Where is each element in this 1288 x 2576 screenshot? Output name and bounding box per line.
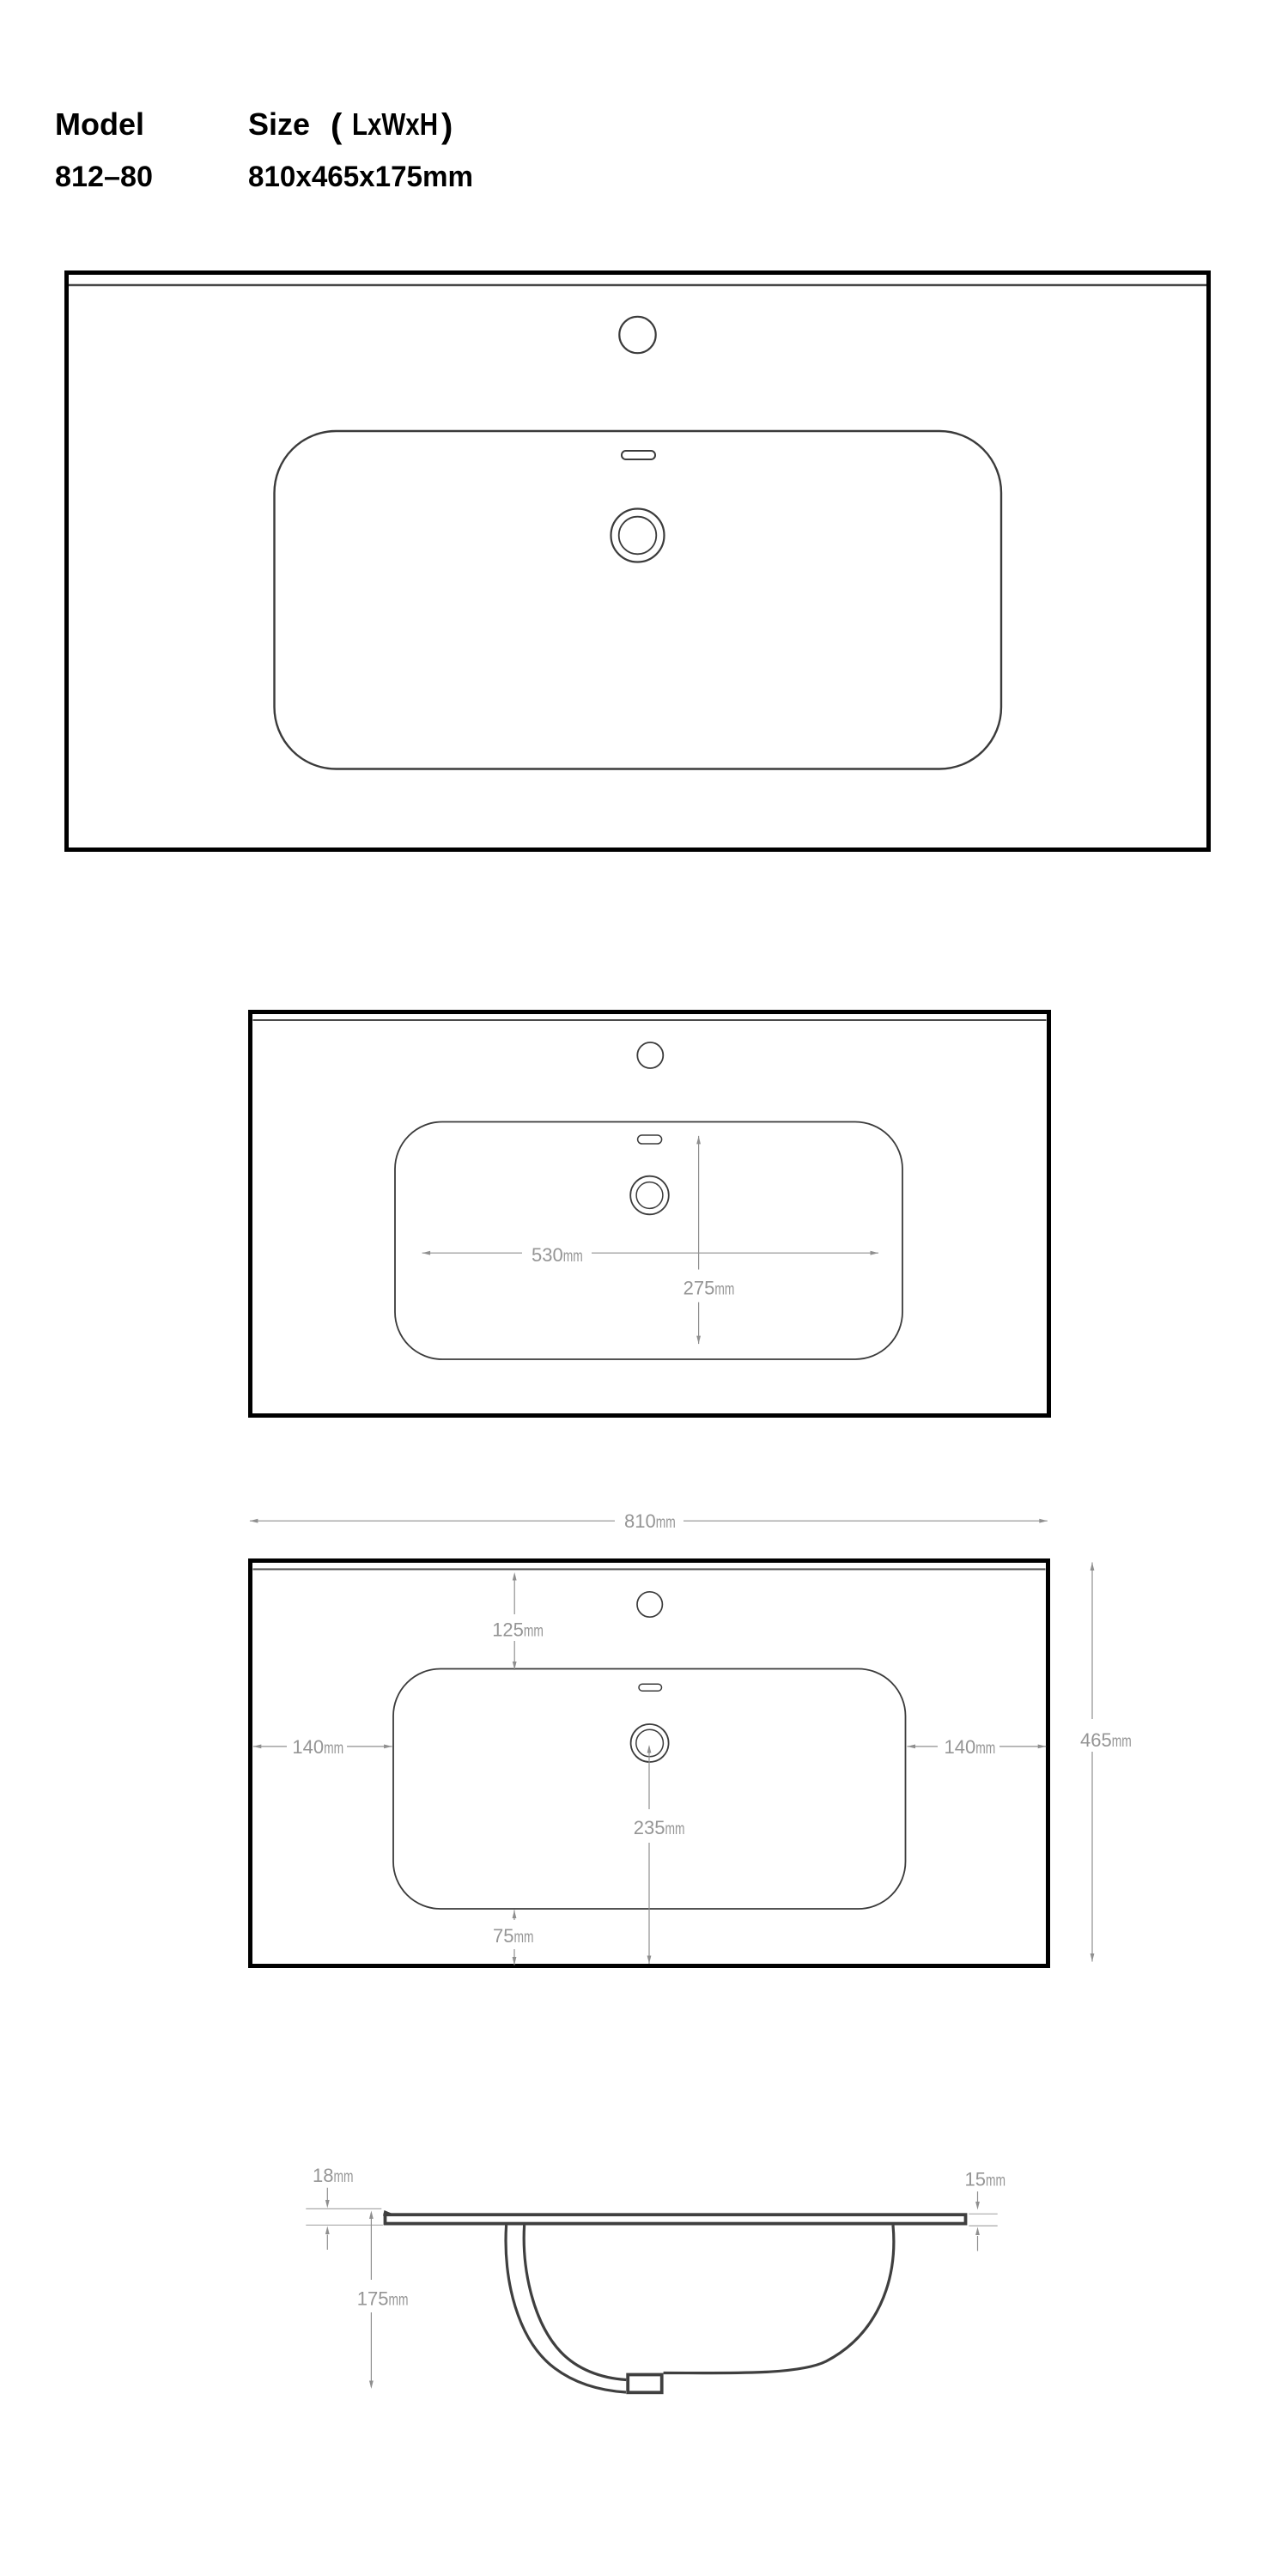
svg-text:75mm: 75mm: [493, 1925, 533, 1947]
svg-text:Model: Model: [55, 106, 144, 142]
svg-text:15mm: 15mm: [965, 2169, 1005, 2190]
svg-text:810x465x175mm: 810x465x175mm: [248, 161, 473, 193]
svg-text:810mm: 810mm: [624, 1510, 676, 1532]
svg-text:125mm: 125mm: [492, 1619, 544, 1641]
svg-text:530mm: 530mm: [532, 1244, 583, 1266]
svg-text:275mm: 275mm: [683, 1278, 735, 1299]
svg-text:175mm: 175mm: [357, 2288, 409, 2310]
svg-text:812–80: 812–80: [55, 161, 153, 193]
svg-text:140mm: 140mm: [292, 1736, 343, 1758]
svg-text:140mm: 140mm: [945, 1736, 996, 1758]
svg-text:18mm: 18mm: [313, 2165, 353, 2186]
svg-text:Size(LxWxH): Size(LxWxH): [248, 106, 453, 145]
svg-text:465mm: 465mm: [1080, 1729, 1132, 1751]
svg-text:235mm: 235mm: [634, 1817, 685, 1838]
